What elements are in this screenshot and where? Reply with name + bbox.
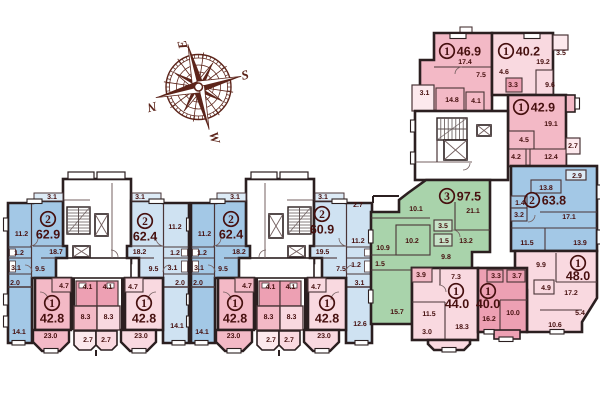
svg-text:42.8: 42.8 <box>223 312 247 326</box>
svg-text:63.8: 63.8 <box>542 194 566 208</box>
svg-text:42.9: 42.9 <box>531 101 555 115</box>
svg-text:4.5: 4.5 <box>519 137 529 144</box>
svg-text:4.2: 4.2 <box>511 154 521 161</box>
svg-text:9.8: 9.8 <box>441 254 451 261</box>
svg-text:13.9: 13.9 <box>573 240 587 247</box>
svg-text:60.9: 60.9 <box>310 223 334 237</box>
svg-text:7.3: 7.3 <box>451 274 461 281</box>
svg-text:3: 3 <box>444 191 450 203</box>
svg-text:10.0: 10.0 <box>506 310 520 317</box>
svg-text:62.9: 62.9 <box>36 228 60 242</box>
svg-text:21.1: 21.1 <box>466 208 480 215</box>
svg-text:44.0: 44.0 <box>445 297 469 311</box>
svg-text:40.0: 40.0 <box>476 297 500 311</box>
svg-text:13.2: 13.2 <box>459 238 473 245</box>
svg-text:10.9: 10.9 <box>376 245 390 252</box>
svg-text:4.1: 4.1 <box>103 284 113 291</box>
svg-text:4.9: 4.9 <box>541 285 551 292</box>
svg-text:16.2: 16.2 <box>482 316 496 323</box>
svg-text:4.6: 4.6 <box>499 69 509 76</box>
svg-text:62.4: 62.4 <box>219 228 243 242</box>
svg-text:19.5: 19.5 <box>316 249 330 256</box>
svg-text:1: 1 <box>324 298 330 310</box>
svg-text:2.7: 2.7 <box>266 337 276 344</box>
svg-text:13.8: 13.8 <box>539 185 553 192</box>
svg-text:3.1: 3.1 <box>194 265 204 272</box>
svg-text:3.1: 3.1 <box>11 265 21 272</box>
svg-text:3.5: 3.5 <box>438 223 448 230</box>
svg-text:97.5: 97.5 <box>457 190 481 204</box>
svg-text:9.9: 9.9 <box>536 262 546 269</box>
svg-text:2: 2 <box>142 216 148 228</box>
svg-text:7.5: 7.5 <box>476 72 486 79</box>
svg-text:3.7: 3.7 <box>512 273 522 280</box>
svg-text:3.2: 3.2 <box>514 212 524 219</box>
svg-text:14.8: 14.8 <box>445 97 459 104</box>
svg-text:4.1: 4.1 <box>83 284 93 291</box>
svg-text:2.7: 2.7 <box>284 337 294 344</box>
svg-text:11.5: 11.5 <box>520 240 533 247</box>
svg-text:3.1: 3.1 <box>47 194 57 201</box>
svg-text:1: 1 <box>141 298 147 310</box>
svg-text:2: 2 <box>228 214 234 226</box>
svg-text:10.2: 10.2 <box>405 238 419 245</box>
svg-text:2.7: 2.7 <box>83 337 93 344</box>
svg-text:40.2: 40.2 <box>516 45 540 59</box>
svg-text:17.4: 17.4 <box>458 59 472 66</box>
svg-text:14.1: 14.1 <box>170 323 184 330</box>
svg-text:11.2: 11.2 <box>168 224 181 231</box>
svg-text:9.5: 9.5 <box>35 266 45 273</box>
svg-text:1: 1 <box>503 46 509 58</box>
svg-text:8.3: 8.3 <box>287 314 297 321</box>
svg-text:1.4: 1.4 <box>515 200 525 207</box>
svg-text:48.0: 48.0 <box>566 269 590 283</box>
svg-text:62.4: 62.4 <box>133 230 157 244</box>
svg-text:4.7: 4.7 <box>59 283 69 290</box>
svg-text:1: 1 <box>444 46 450 58</box>
svg-text:11.2: 11.2 <box>351 238 364 245</box>
svg-text:8.3: 8.3 <box>81 314 91 321</box>
svg-text:2.0: 2.0 <box>175 280 185 287</box>
svg-text:3.1: 3.1 <box>135 194 145 201</box>
svg-text:46.9: 46.9 <box>457 45 481 59</box>
svg-text:3.0: 3.0 <box>422 329 432 336</box>
svg-text:7.5: 7.5 <box>336 266 346 273</box>
svg-text:18.2: 18.2 <box>133 249 147 256</box>
svg-text:18.2: 18.2 <box>232 249 246 256</box>
svg-text:9.5: 9.5 <box>218 266 228 273</box>
svg-text:17.2: 17.2 <box>564 290 578 297</box>
svg-text:12.6: 12.6 <box>353 321 367 328</box>
svg-text:1.2: 1.2 <box>170 250 180 257</box>
svg-text:3.9: 3.9 <box>416 272 426 279</box>
svg-text:1: 1 <box>232 298 238 310</box>
svg-text:1.2: 1.2 <box>351 262 361 269</box>
svg-text:23.0: 23.0 <box>317 333 331 340</box>
svg-text:3.1: 3.1 <box>355 280 365 287</box>
svg-text:1.2: 1.2 <box>14 250 24 257</box>
svg-text:1.5: 1.5 <box>375 261 385 268</box>
svg-text:2.7: 2.7 <box>568 143 578 150</box>
svg-text:15.7: 15.7 <box>390 309 404 316</box>
svg-text:9.5: 9.5 <box>149 266 159 273</box>
svg-text:42.8: 42.8 <box>40 312 64 326</box>
svg-text:42.8: 42.8 <box>132 312 156 326</box>
svg-text:5.4: 5.4 <box>575 310 585 317</box>
svg-text:2.0: 2.0 <box>10 280 20 287</box>
svg-text:12.4: 12.4 <box>544 154 558 161</box>
svg-text:14.1: 14.1 <box>12 329 26 336</box>
svg-text:1.2: 1.2 <box>197 250 207 257</box>
svg-text:1.5: 1.5 <box>439 238 449 245</box>
svg-text:11.5: 11.5 <box>422 311 435 318</box>
svg-text:10.6: 10.6 <box>548 322 562 329</box>
svg-text:3.5: 3.5 <box>556 50 566 57</box>
svg-text:19.1: 19.1 <box>544 121 558 128</box>
svg-text:4.7: 4.7 <box>242 283 252 290</box>
svg-text:4.1: 4.1 <box>286 284 296 291</box>
svg-text:23.0: 23.0 <box>134 333 148 340</box>
svg-text:3.3: 3.3 <box>508 82 518 89</box>
svg-text:23.0: 23.0 <box>44 333 58 340</box>
svg-text:42.8: 42.8 <box>315 312 339 326</box>
svg-text:2: 2 <box>319 209 325 221</box>
svg-text:8.3: 8.3 <box>104 314 114 321</box>
svg-text:11.2: 11.2 <box>198 231 211 238</box>
svg-text:4.7: 4.7 <box>311 284 321 291</box>
svg-text:2.0: 2.0 <box>193 280 203 287</box>
svg-text:14.1: 14.1 <box>195 329 209 336</box>
svg-text:18.3: 18.3 <box>455 324 469 331</box>
svg-text:3.1: 3.1 <box>168 265 178 272</box>
svg-text:11.2: 11.2 <box>15 231 28 238</box>
svg-text:3.1: 3.1 <box>230 194 240 201</box>
svg-text:3.3: 3.3 <box>491 273 501 280</box>
svg-text:23.0: 23.0 <box>227 333 241 340</box>
svg-text:18.7: 18.7 <box>49 249 63 256</box>
svg-text:2.7: 2.7 <box>353 202 363 209</box>
svg-text:4.1: 4.1 <box>471 98 481 105</box>
svg-text:2.7: 2.7 <box>101 337 111 344</box>
svg-text:19.2: 19.2 <box>536 59 550 66</box>
svg-text:1: 1 <box>518 102 524 114</box>
svg-text:2: 2 <box>529 195 535 207</box>
svg-text:2.9: 2.9 <box>572 173 582 180</box>
svg-text:8.3: 8.3 <box>264 314 274 321</box>
svg-text:3.1: 3.1 <box>318 194 328 201</box>
svg-text:10.1: 10.1 <box>409 206 423 213</box>
svg-text:9.6: 9.6 <box>545 82 555 89</box>
svg-text:17.1: 17.1 <box>562 214 576 221</box>
svg-text:4.7: 4.7 <box>128 284 138 291</box>
svg-text:3.1: 3.1 <box>420 90 430 97</box>
svg-text:2: 2 <box>45 214 51 226</box>
svg-text:4.1: 4.1 <box>266 284 276 291</box>
svg-text:1: 1 <box>49 298 55 310</box>
